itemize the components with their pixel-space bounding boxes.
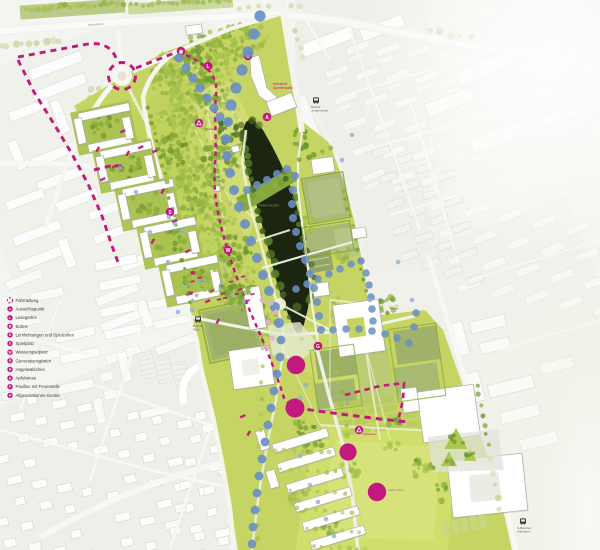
svg-text:▲: ▲ — [8, 307, 11, 311]
svg-text:G: G — [316, 344, 320, 350]
svg-text:Allgenerationen-Geräte: Allgenerationen-Geräte — [16, 393, 61, 398]
svg-text:S: S — [9, 342, 11, 346]
svg-text:Spielzellen: Spielzellen — [205, 127, 218, 131]
svg-text:A: A — [265, 115, 269, 121]
svg-text:Johannisthal: Johannisthal — [311, 109, 328, 113]
svg-text:Lernlichtungen und Spielzellen: Lernlichtungen und Spielzellen — [16, 332, 75, 337]
svg-text:Aktive Wiese: Aktive Wiese — [388, 488, 405, 492]
svg-text:Park: Park — [193, 328, 200, 332]
svg-text:Wasserspielplatz: Wasserspielplatz — [16, 350, 48, 355]
svg-text:Generationsgärten: Generationsgärten — [16, 358, 52, 363]
svg-text:Apfelwiese: Apfelwiese — [363, 432, 377, 436]
svg-text:L: L — [206, 64, 209, 70]
svg-text:SPHÄRE WASSER: SPHÄRE WASSER — [258, 205, 279, 208]
svg-text:Hügelwäldchen: Hügelwäldchen — [16, 367, 46, 372]
svg-text:Fahrradweg: Fahrradweg — [16, 298, 40, 303]
svg-text:L: L — [9, 316, 11, 320]
svg-text:W: W — [8, 350, 11, 354]
svg-text:Apfelwiese: Apfelwiese — [16, 376, 37, 381]
svg-text:S: S — [9, 333, 11, 337]
svg-text:Bühne: Bühne — [16, 324, 29, 329]
svg-text:Spielplatz: Spielplatz — [16, 341, 35, 346]
svg-text:Lesegarten: Lesegarten — [16, 315, 38, 320]
svg-text:Quartiersplatz: Quartiersplatz — [273, 86, 293, 90]
svg-text:W: W — [226, 248, 231, 254]
svg-text:Pavillon mit Feuerstelle: Pavillon mit Feuerstelle — [16, 384, 61, 389]
svg-text:Aussichtspunkt: Aussichtspunkt — [16, 307, 46, 312]
